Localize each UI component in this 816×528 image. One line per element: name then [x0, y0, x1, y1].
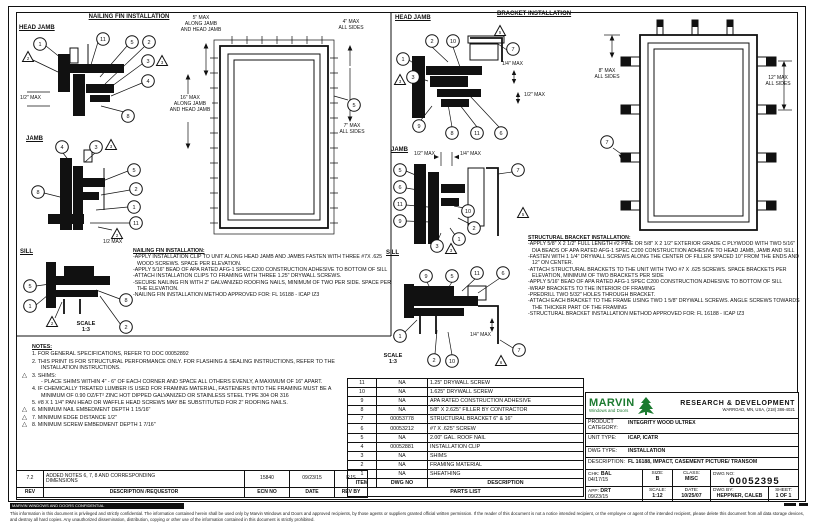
- table-row: 10NA1.625" DRYWALL SCREW: [348, 388, 584, 397]
- svg-text:11: 11: [133, 221, 139, 227]
- parts-list-header-row: ITEMDWG NODESCRIPTION: [348, 479, 584, 488]
- confidential-bar: MARVIN WINDOWS AND DOORS CONFIDENTIAL: [10, 503, 184, 509]
- svg-text:11: 11: [100, 37, 106, 43]
- table-row: 9NAAPA RATED CONSTRUCTION ADHESIVE: [348, 397, 584, 406]
- bracket-elevation: 7: [601, 20, 792, 230]
- fin-instruction: -APPLY INSTALLATION CLIP TO UNIT ALONG H…: [133, 254, 391, 267]
- title-block: MARVIN Windows and Doors RESEARCH & DEVE…: [585, 392, 799, 500]
- svg-text:3: 3: [146, 59, 149, 65]
- unit-type-label: UNIT TYPE:: [586, 434, 626, 446]
- svg-text:11: 11: [397, 202, 403, 208]
- table-row: 8NA5/8" X 2.625" FILLER BY CONTRACTOR: [348, 406, 584, 415]
- note-6: 6. MINIMUM NAIL EMBEDMENT DEPTH 1 15/16": [32, 407, 150, 414]
- description-label: DESCRIPTION:: [586, 458, 626, 469]
- svg-text:7: 7: [516, 168, 519, 174]
- table-row: 1NASHEATHING: [348, 469, 584, 478]
- svg-text:5: 5: [398, 168, 401, 174]
- fin-instructions: NAILING FIN INSTALLATION: -APPLY INSTALL…: [133, 248, 391, 299]
- brk-j-quarter: 1/4" MAX: [460, 152, 481, 158]
- svg-text:5: 5: [130, 40, 133, 46]
- dwg-type-value: INSTALLATION: [626, 447, 798, 457]
- table-row: 2NAFRAMING MATERIAL: [348, 460, 584, 469]
- note-flag-icon: △: [22, 373, 32, 386]
- svg-text:1: 1: [457, 237, 460, 243]
- footer-mark: [799, 503, 808, 506]
- note-flag-icon: △: [22, 422, 32, 429]
- company-address: WARROAD, MN, USA, (218) 386-4021: [657, 407, 795, 412]
- svg-text:1: 1: [398, 334, 401, 340]
- scale-value: 1:12: [645, 493, 670, 499]
- unit-type-value: ICAP, ICATR: [626, 434, 798, 446]
- note-1: 1. FOR GENERAL SPECIFICATIONS, REFER TO …: [32, 351, 189, 358]
- parts-list-title-row: PARTS LIST: [348, 488, 584, 497]
- svg-text:2: 2: [147, 40, 150, 46]
- svg-text:7: 7: [511, 47, 514, 53]
- bracket-instruction: -APPLY 5/8" X 2 1/2" FULL LENGTH #2 PINE…: [528, 241, 800, 254]
- svg-text:3: 3: [435, 244, 438, 250]
- fin-sill-label: SILL: [20, 249, 33, 256]
- dwg-by-value: HEPPNER, CALEB: [713, 493, 766, 499]
- size-value: B: [645, 476, 670, 482]
- bracket-sill-label: SILL: [386, 250, 399, 257]
- title-block-logo-row: MARVIN Windows and Doors RESEARCH & DEVE…: [586, 393, 798, 418]
- fin-section-title: NAILING FIN INSTALLATION: [80, 14, 178, 21]
- app-date: 09/23/15: [588, 494, 640, 500]
- fin-instruction: -NAILING FIN INSTALLATION METHOD APPROVE…: [133, 292, 391, 298]
- fin-j-dim: 1/2 MAX: [103, 240, 122, 246]
- svg-text:8: 8: [450, 131, 453, 137]
- notes-title: NOTES:: [32, 344, 344, 350]
- svg-text:5: 5: [28, 284, 31, 290]
- brk-elev-dim-right: 12" MAX ALL SIDES: [758, 76, 798, 88]
- svg-text:2: 2: [430, 39, 433, 45]
- fin-instruction: -SECURE NAILING FIN WITH 2" GALVANIZED R…: [133, 280, 391, 293]
- svg-text:3: 3: [94, 145, 97, 151]
- table-row: 5NA2.00" GAL. ROOF NAIL: [348, 433, 584, 442]
- bracket-head-jamb-label: HEAD JAMB: [395, 15, 431, 22]
- bracket-instruction: -ATTACH STRUCTURAL BRACKETS TO THE UNIT …: [528, 267, 800, 280]
- svg-text:6: 6: [499, 131, 502, 137]
- svg-text:7: 7: [517, 348, 520, 354]
- note-2: 2. THIS PRINT IS FOR STRUCTURAL PERFORMA…: [32, 359, 344, 372]
- svg-text:5: 5: [132, 168, 135, 174]
- svg-text:8: 8: [36, 190, 39, 196]
- svg-text:7: 7: [605, 140, 608, 146]
- product-category-value: INTEGRITY WOOD ULTREX: [626, 419, 798, 433]
- fin-jamb-label: JAMB: [26, 136, 43, 143]
- fin-head-jamb-label: HEAD JAMB: [19, 25, 55, 32]
- company-tagline: Windows and Doors: [589, 409, 635, 413]
- drawing-sheet: 1 11 5 2 3 4 8 2 3 4 3 5 2 1 11 8: [0, 0, 816, 528]
- revision-table: 7.2 ADDED NOTES 6, 7, 8 AND CORRESPONDIN…: [16, 470, 368, 498]
- revision-header-row: REV DESCRIPTION /REQUESTOR ECN NO DATE R…: [17, 488, 368, 498]
- brk-hj-half: 1/2" MAX: [524, 93, 545, 99]
- bracket-jamb-label: JAMB: [391, 147, 408, 154]
- fin-elev-dim-left: 16" MAX ALONG JAMB AND HEAD JAMB: [168, 96, 212, 113]
- brk-s-quarter: 1/4" MAX: [470, 333, 491, 339]
- bracket-sill-detail: 9 5 11 6 1 2 10 7 6: [394, 267, 526, 368]
- class-value: MISC: [675, 476, 708, 482]
- rev-description: ADDED NOTES 6, 7, 8 AND CORRESPONDING DI…: [44, 471, 245, 488]
- disclaimer-text: This information in this document is pri…: [10, 511, 804, 522]
- svg-text:11: 11: [474, 271, 480, 277]
- fin-elev-dim-r1: 4" MAX ALL SIDES: [332, 20, 370, 32]
- parts-list-table: 11NA1.25" DRYWALL SCREW 10NA1.625" DRYWA…: [347, 378, 584, 497]
- fin-scale: SCALE 1:3: [74, 321, 98, 334]
- table-row: 3NASHIMS: [348, 451, 584, 460]
- svg-text:1: 1: [401, 57, 404, 63]
- svg-text:6: 6: [501, 271, 504, 277]
- department: RESEARCH & DEVELOPMENT: [657, 400, 795, 407]
- svg-text:3: 3: [411, 75, 414, 81]
- bracket-scale: SCALE 1:3: [380, 353, 406, 366]
- fin-elev-dim-r2: 7" MAX ALL SIDES: [333, 124, 371, 136]
- bracket-instruction: -FASTEN WITH 1 1/4" DRYWALL SCREWS ALONG…: [528, 254, 800, 267]
- svg-text:9: 9: [424, 274, 427, 280]
- bracket-instructions: STRUCTURAL BRACKET INSTALLATION: -APPLY …: [528, 235, 800, 317]
- brk-j-half: 1/2" MAX: [414, 152, 435, 158]
- revision-row: 7.2 ADDED NOTES 6, 7, 8 AND CORRESPONDIN…: [17, 471, 368, 488]
- rev-date: 09/23/15: [290, 471, 335, 488]
- rev-ecn: 15840: [245, 471, 290, 488]
- table-row: 11NA1.25" DRYWALL SCREW: [348, 379, 584, 388]
- svg-text:5: 5: [352, 103, 355, 109]
- fin-elev-dim-top: 5" MAX ALONG JAMB AND HEAD JAMB: [178, 16, 224, 33]
- bracket-head-jamb-detail: 2 10 7 1 3 9 8 11 6 5 3: [395, 26, 521, 140]
- svg-text:5: 5: [450, 274, 453, 280]
- bracket-jamb-detail: 5 6 11 9 3 1 2 10 7 3 5: [394, 152, 529, 254]
- svg-text:10: 10: [465, 209, 471, 215]
- sheet-value: 1 OF 1: [771, 493, 796, 499]
- svg-text:8: 8: [124, 298, 127, 304]
- notes-block: NOTES: △1. FOR GENERAL SPECIFICATIONS, R…: [22, 344, 344, 429]
- footer-mark: [784, 503, 796, 506]
- bracket-instruction: -ATTACH EACH BRACKET TO THE FRAME USING …: [528, 298, 800, 311]
- bracket-instruction: -STRUCTURAL BRACKET INSTALLATION METHOD …: [528, 311, 800, 317]
- product-category-label: PRODUCT CATEGORY:: [586, 419, 626, 433]
- svg-text:4: 4: [60, 145, 63, 151]
- svg-text:9: 9: [417, 124, 420, 130]
- chk-date: 04/17/15: [588, 477, 640, 483]
- svg-text:4: 4: [146, 79, 149, 85]
- svg-text:6: 6: [398, 185, 401, 191]
- svg-text:10: 10: [450, 39, 456, 45]
- svg-text:9: 9: [398, 219, 401, 225]
- table-row: 400052881INSTALLATION CLIP: [348, 442, 584, 451]
- fin-jamb-detail: 4 3 5 2 1 11 8 3 2: [32, 140, 143, 239]
- date-value: 10/25/07: [675, 493, 708, 499]
- svg-text:2: 2: [134, 187, 137, 193]
- fin-hj-dim: 1/2" MAX: [20, 96, 41, 102]
- table-row: 700053778STRUCTURAL BRACKET 6" & 16": [348, 415, 584, 424]
- brk-hj-quarter: 1/4" MAX: [502, 62, 523, 68]
- svg-text:10: 10: [449, 359, 455, 365]
- svg-text:1: 1: [132, 205, 135, 211]
- table-row: 600053212#7 X .625" SCREW: [348, 424, 584, 433]
- svg-text:11: 11: [474, 131, 480, 137]
- note-5: 5. #8 X 1 1/4" PAN HEAD OR WAFFLE HEAD S…: [32, 400, 288, 407]
- brk-elev-dim-left: 8" MAX ALL SIDES: [588, 69, 626, 81]
- rev-by: RJS: [335, 471, 368, 488]
- rev-number: 7.2: [17, 471, 44, 488]
- svg-text:2: 2: [124, 325, 127, 331]
- dwg-no-value: 00052395: [713, 477, 796, 486]
- note-8: 8. MINIMUM SCREW EMBEDMENT DEPTH 1 7/16": [32, 422, 156, 429]
- svg-text:2: 2: [472, 226, 475, 232]
- note-7: 7. MINIMUM EDGE DISTANCE 1/2": [32, 415, 117, 422]
- svg-text:1: 1: [38, 42, 41, 48]
- svg-text:2: 2: [432, 358, 435, 364]
- note-flag-icon: △: [22, 407, 32, 414]
- svg-text:8: 8: [126, 114, 129, 120]
- dwg-type-label: DWG TYPE:: [586, 447, 626, 457]
- svg-text:1: 1: [28, 304, 31, 310]
- description-value: FL 16188, IMPACT, CASEMENT PICTURE/ TRAN…: [626, 458, 798, 469]
- bracket-instruction: -APPLY 5/16" BEAD OF APA RATED AFG-1 SPE…: [528, 279, 800, 285]
- fin-head-jamb-detail: 1 11 5 2 3 4 8 2 3: [23, 33, 168, 123]
- note-3: 3. SHIMS: - PLACE SHIMS WITHIN 4" - 6" O…: [32, 373, 322, 386]
- evergreen-tree-icon: [638, 397, 654, 415]
- bracket-section-title: BRACKET INSTALLATION: [497, 11, 571, 18]
- note-4: 4. IF CHEMICALLY TREATED LUMBER IS USED …: [32, 386, 344, 399]
